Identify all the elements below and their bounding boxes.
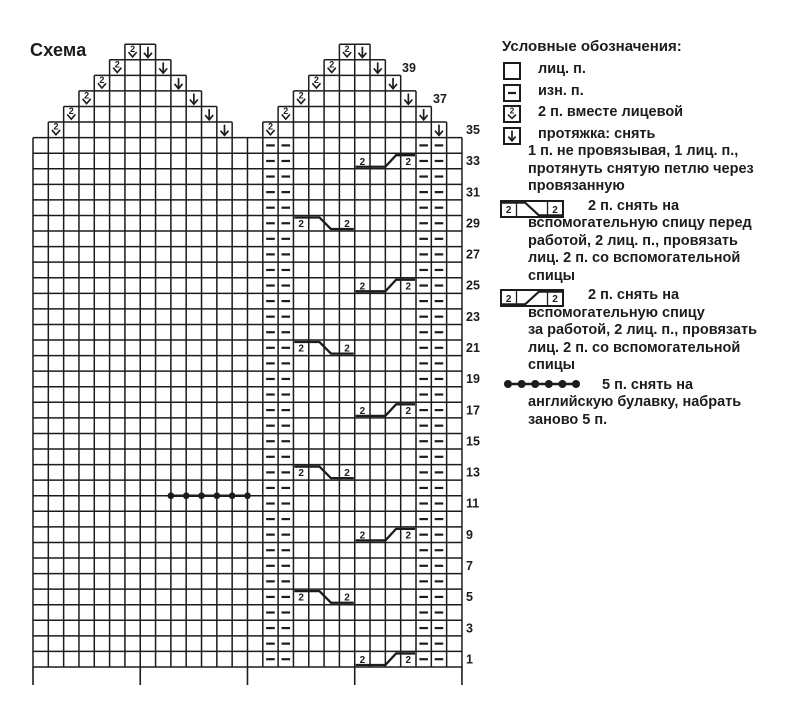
right-peak: 222222 xyxy=(263,44,447,138)
slip-decrease-symbol xyxy=(358,47,366,58)
svg-text:2: 2 xyxy=(506,205,512,216)
row-number: 29 xyxy=(466,216,480,230)
legend-item-cable-back: 2 22 п. снять навспомогательную спицуза … xyxy=(500,287,768,375)
legend-item-pin-dots: 5 п. снять наанглийскую булавку, набрать… xyxy=(500,377,768,430)
row-number: 11 xyxy=(466,497,479,511)
row-number: 37 xyxy=(433,92,447,106)
svg-text:2: 2 xyxy=(314,75,319,85)
svg-text:2: 2 xyxy=(69,106,74,116)
legend-text-line: изн. п. xyxy=(500,83,768,101)
row-number: 19 xyxy=(466,372,480,386)
knit-stitch-icon xyxy=(503,62,521,80)
legend-text-line: английскую булавку, набрать xyxy=(500,394,768,412)
svg-text:2: 2 xyxy=(84,91,89,101)
knitting-pattern-page: Схема 2222222222222222222222222222221357… xyxy=(0,0,800,705)
row-number: 27 xyxy=(466,248,480,262)
k2tog-symbol: 2 xyxy=(282,106,290,119)
legend-text-line: провязанную xyxy=(500,178,768,196)
svg-text:2: 2 xyxy=(552,294,558,305)
legend-text-line: вспомогательную спицу xyxy=(500,305,768,323)
legend-text-line: лиц. 2 п. со вспомогательной xyxy=(500,250,768,268)
k2tog-symbol: 2 xyxy=(297,91,305,104)
slip-decrease-symbol xyxy=(175,78,183,89)
legend-text-line: лиц. п. xyxy=(500,61,768,79)
slip-decrease-symbol xyxy=(404,94,412,105)
svg-text:2: 2 xyxy=(406,406,412,417)
row-number: 13 xyxy=(466,466,480,480)
slip-decrease-symbol xyxy=(144,47,152,58)
row-number: 21 xyxy=(466,341,480,355)
svg-text:2: 2 xyxy=(298,344,304,355)
legend-text-line: работой, 2 лиц. п., провязать xyxy=(500,233,768,251)
svg-text:2: 2 xyxy=(506,294,512,305)
slip-decrease-symbol xyxy=(190,94,198,105)
slip-decrease-symbol xyxy=(420,109,428,120)
slip-decrease-symbol xyxy=(159,62,167,73)
safety-pin-icon xyxy=(503,378,581,390)
svg-text:2: 2 xyxy=(510,106,515,116)
slip-decrease-symbol xyxy=(205,109,213,120)
k2tog-symbol: 2 xyxy=(67,106,75,119)
k2tog-symbol: 2 xyxy=(328,59,336,72)
svg-text:2: 2 xyxy=(329,59,334,69)
svg-text:2: 2 xyxy=(268,122,273,132)
left-peak: 222222 xyxy=(48,44,232,138)
legend-text-line: спицы xyxy=(500,268,768,286)
legend-text-line: протяжка: снять xyxy=(500,126,768,144)
legend: Условные обозначения: лиц. п. изн. п. 2 … xyxy=(500,38,768,431)
svg-text:2: 2 xyxy=(298,219,304,230)
section-ticks xyxy=(33,667,462,685)
slip-decrease-symbol xyxy=(389,78,397,89)
legend-text-line: протянуть снятую петлю через xyxy=(500,161,768,179)
svg-text:2: 2 xyxy=(406,655,412,666)
svg-text:2: 2 xyxy=(360,281,366,292)
svg-text:2: 2 xyxy=(406,530,412,541)
svg-text:2: 2 xyxy=(360,655,366,666)
legend-items: лиц. п. изн. п. 2 2 п. вместе лицевой пр… xyxy=(500,61,768,429)
svg-text:2: 2 xyxy=(344,593,350,604)
svg-text:2: 2 xyxy=(130,44,135,54)
svg-text:2: 2 xyxy=(406,157,412,168)
row-number: 3 xyxy=(466,621,473,635)
slip-decrease-symbol xyxy=(374,62,382,73)
safety-pin-dots xyxy=(168,492,251,499)
svg-text:2: 2 xyxy=(298,468,304,479)
row-number: 33 xyxy=(466,154,480,168)
legend-text-line: лиц. 2 п. со вспомогательной xyxy=(500,340,768,358)
svg-text:2: 2 xyxy=(344,344,350,355)
svg-text:2: 2 xyxy=(552,205,558,216)
svg-text:2: 2 xyxy=(406,281,412,292)
k2tog-symbol: 2 xyxy=(98,75,106,88)
legend-item-purl-box: изн. п. xyxy=(500,83,768,101)
row-number: 15 xyxy=(466,434,480,448)
purl-stitch-icon xyxy=(503,84,521,102)
svg-text:2: 2 xyxy=(344,468,350,479)
row-number: 25 xyxy=(466,279,480,293)
svg-text:2: 2 xyxy=(299,91,304,101)
legend-text-line: 1 п. не провязывая, 1 лиц. п., xyxy=(500,143,768,161)
legend-text-line: за работой, 2 лиц. п., провязать xyxy=(500,322,768,340)
legend-title: Условные обозначения: xyxy=(500,38,768,56)
k2tog-symbol: 2 xyxy=(343,44,351,57)
legend-text-line: спицы xyxy=(500,357,768,375)
row-number: 17 xyxy=(466,403,480,417)
svg-text:2: 2 xyxy=(345,44,350,54)
row-number: 35 xyxy=(466,123,480,137)
svg-text:2: 2 xyxy=(344,219,350,230)
legend-item-slip-box: протяжка: снять1 п. не провязывая, 1 лиц… xyxy=(500,126,768,196)
slip-decrease-symbol xyxy=(221,125,229,136)
row-number: 7 xyxy=(466,559,473,573)
slip-decrease-symbol xyxy=(435,125,443,136)
svg-text:2: 2 xyxy=(298,593,304,604)
row-number: 5 xyxy=(466,590,473,604)
k2tog-symbol: 2 xyxy=(128,44,136,57)
row-number: 23 xyxy=(466,310,480,324)
svg-text:2: 2 xyxy=(360,157,366,168)
k2tog-symbol: 2 xyxy=(52,122,60,135)
knitting-chart: 2222222222222222222222222222221357911131… xyxy=(0,0,495,705)
legend-text-line: заново 5 п. xyxy=(500,412,768,430)
row-number: 31 xyxy=(466,185,480,199)
legend-text-line: 2 п. вместе лицевой xyxy=(500,104,768,122)
k2tog-icon: 2 xyxy=(503,105,521,123)
k2tog-symbol: 2 xyxy=(113,59,121,72)
legend-item-knit-box: лиц. п. xyxy=(500,61,768,79)
k2tog-symbol: 2 xyxy=(83,91,91,104)
row-number: 39 xyxy=(402,61,416,75)
svg-text:2: 2 xyxy=(360,530,366,541)
svg-text:2: 2 xyxy=(115,59,120,69)
cable-back-icon: 2 2 xyxy=(500,289,564,307)
cable-front-icon: 2 2 xyxy=(500,200,564,218)
svg-text:2: 2 xyxy=(360,406,366,417)
grid xyxy=(33,138,462,667)
k2tog-symbol: 2 xyxy=(266,122,274,135)
slip-stitch-icon xyxy=(503,127,521,145)
row-number: 1 xyxy=(466,652,473,666)
legend-text-line: вспомогательную спицу перед xyxy=(500,215,768,233)
k2tog-symbol: 2 xyxy=(312,75,320,88)
row-number: 9 xyxy=(466,528,473,542)
legend-item-k2tog-box: 2 2 п. вместе лицевой xyxy=(500,104,768,122)
svg-text:2: 2 xyxy=(99,75,104,85)
svg-text:2: 2 xyxy=(53,122,58,132)
legend-item-cable-front: 2 22 п. снять навспомогательную спицу пе… xyxy=(500,198,768,286)
svg-text:2: 2 xyxy=(283,106,288,116)
